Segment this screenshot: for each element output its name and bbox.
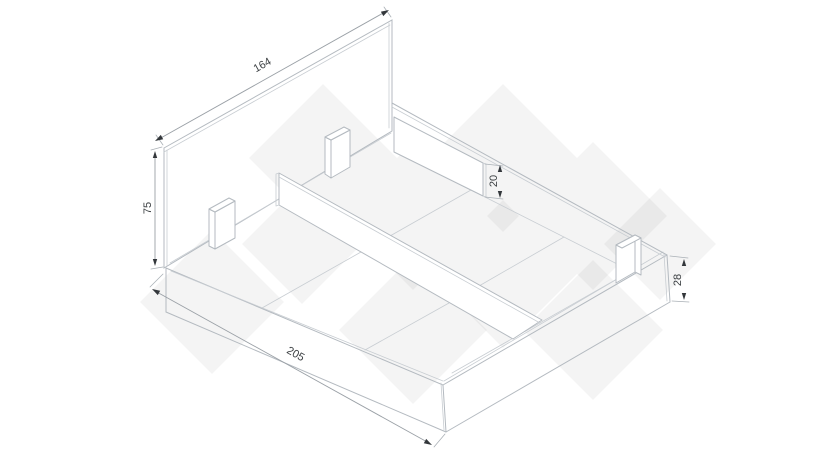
dimension-label-205: 205: [285, 345, 307, 364]
dimension-label-164: 164: [252, 56, 274, 75]
dimension-headboard-height: 75: [142, 147, 163, 269]
extension-tick: [434, 434, 445, 447]
diagram-canvas: 164 75 20 28 205: [0, 0, 825, 464]
isometric-bed-frame-diagram: 164 75 20 28 205: [0, 0, 825, 464]
bracket-side: [325, 137, 331, 178]
dimension-arrow: [682, 293, 686, 300]
dimension-label-75: 75: [142, 202, 154, 214]
dimension-arrow: [153, 151, 157, 158]
extension-tick: [672, 301, 689, 302]
dimension-label-28: 28: [672, 274, 684, 286]
extension-tick: [151, 267, 163, 269]
dimension-arrow: [153, 259, 157, 266]
dimension-label-20: 20: [488, 175, 500, 187]
dimension-arrow: [424, 439, 432, 445]
bracket-block-left: [209, 198, 235, 249]
extension-tick: [151, 147, 162, 150]
bracket-side: [209, 209, 215, 249]
